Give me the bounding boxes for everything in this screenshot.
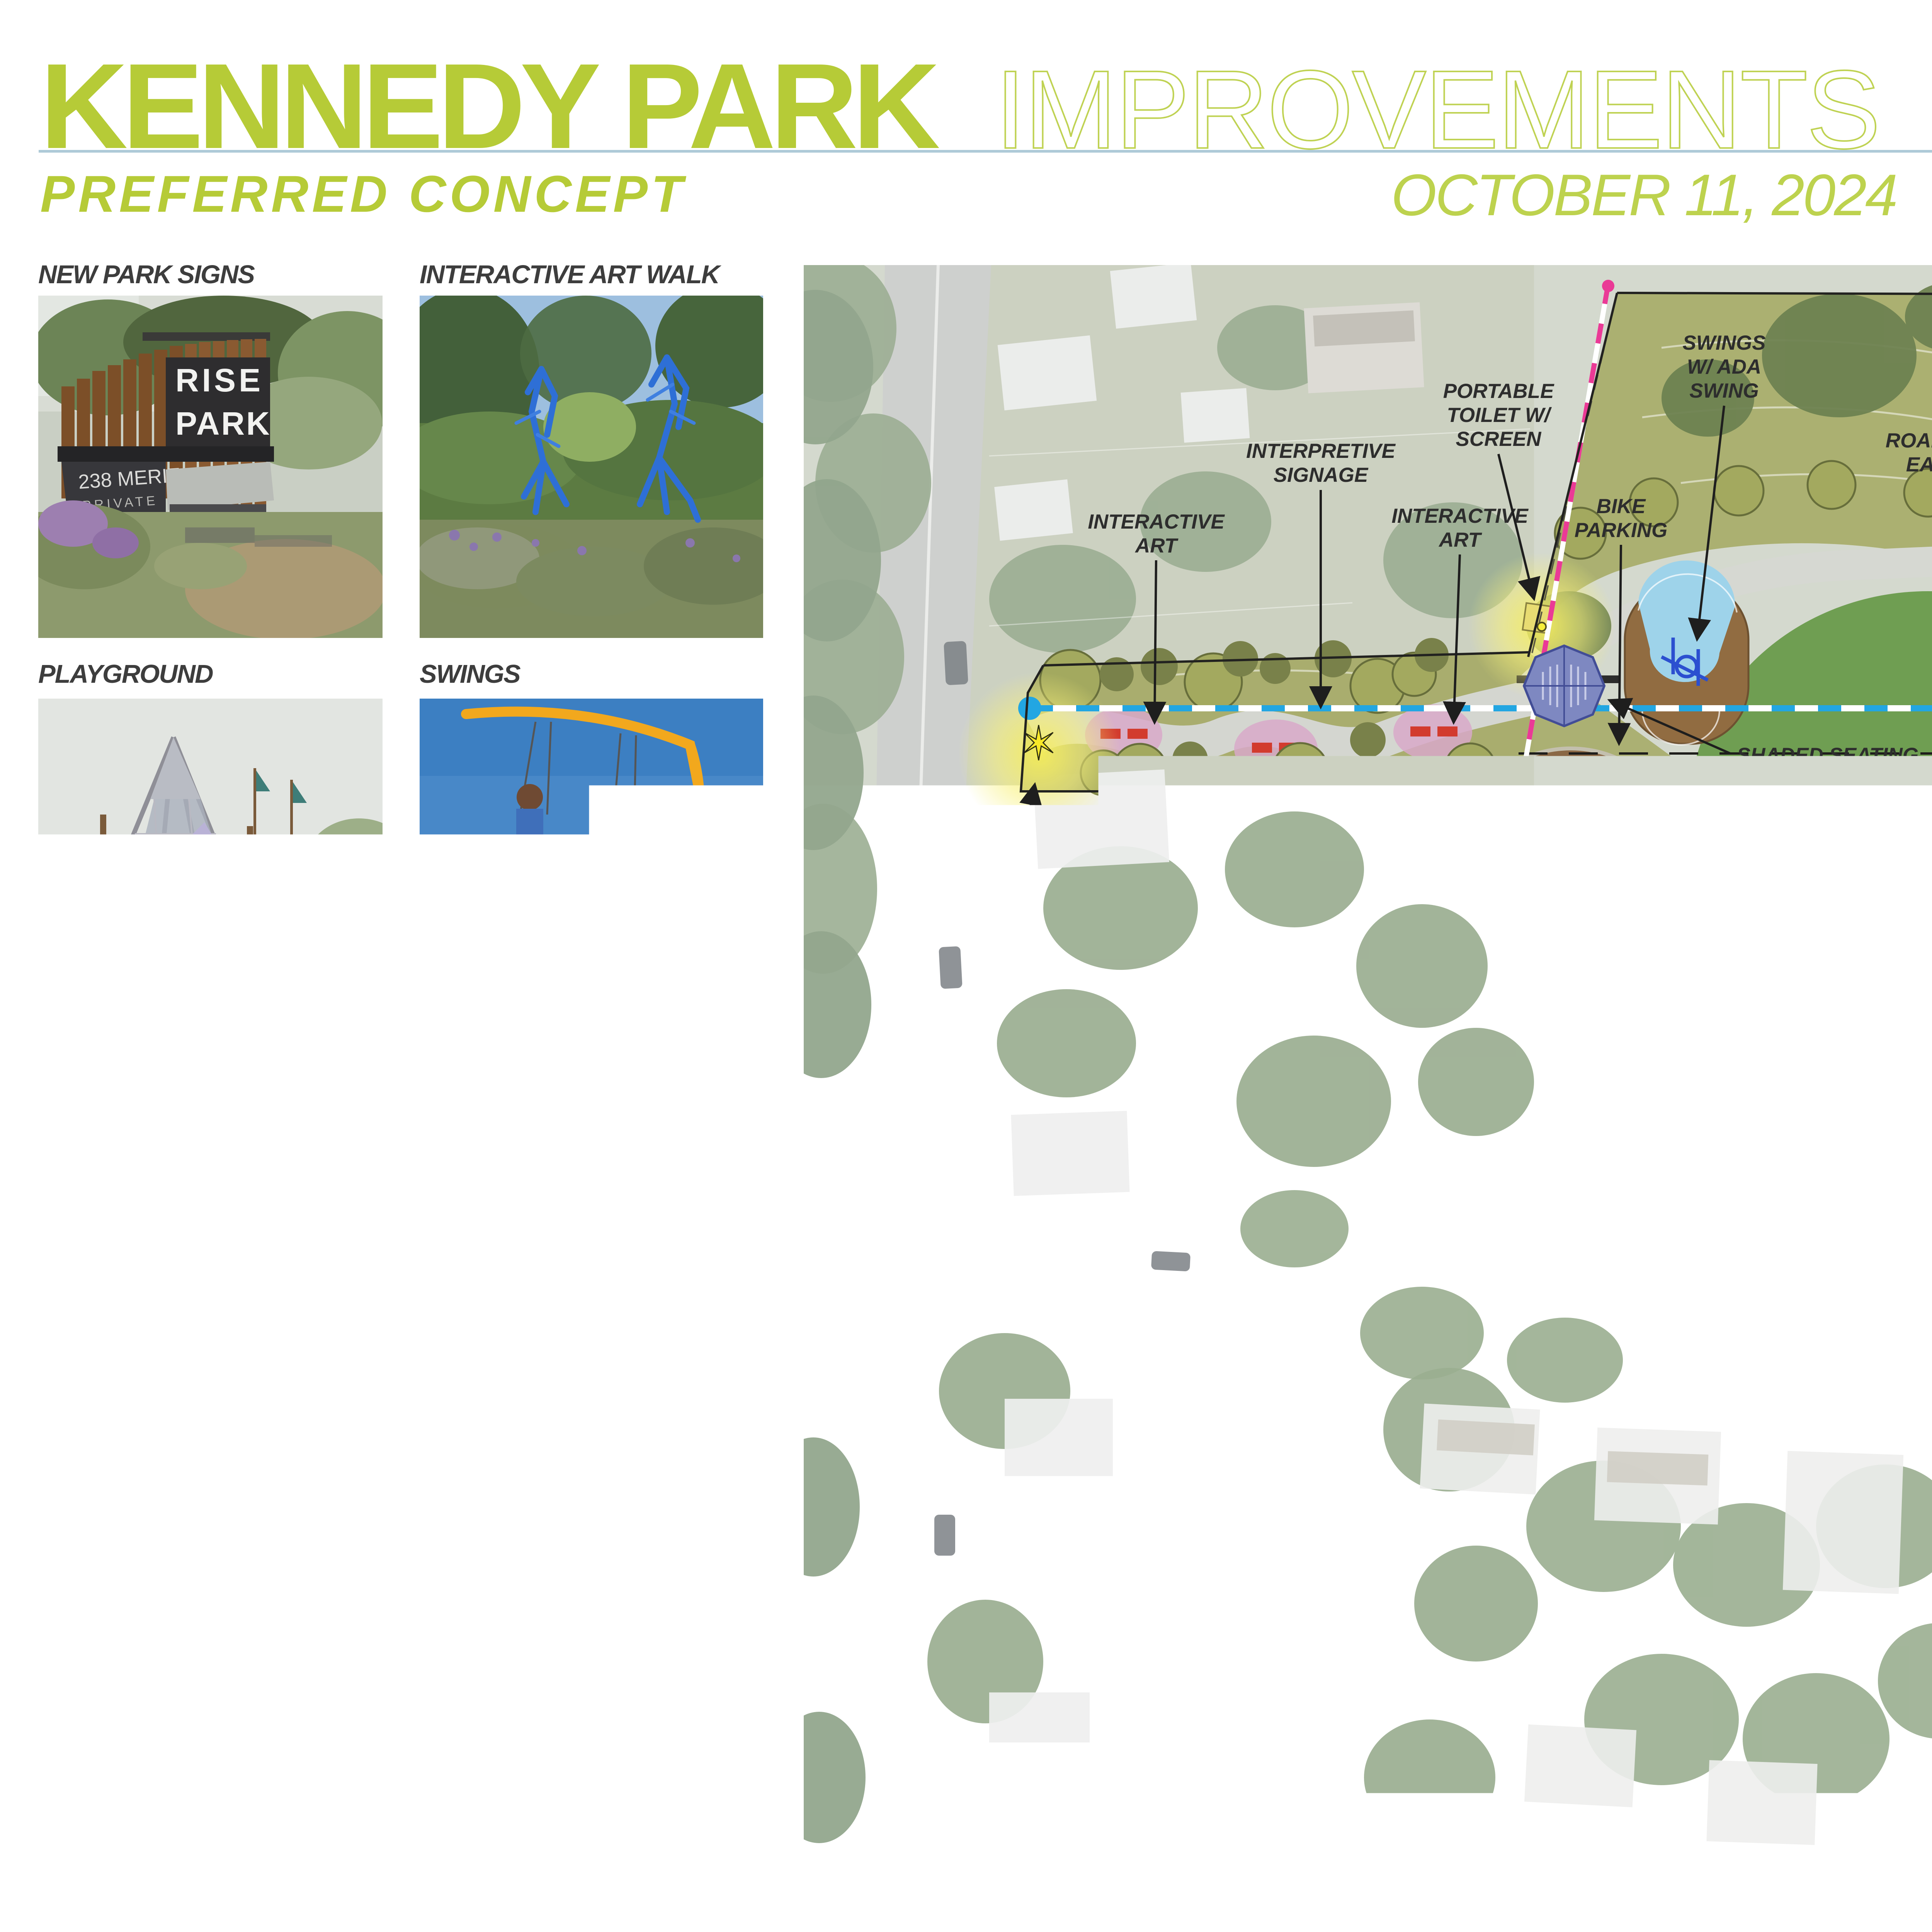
svg-text:PORTABLE: PORTABLE (1443, 380, 1554, 403)
svg-text:PARK: PARK (1618, 1341, 1670, 1361)
svg-text:W/ ADA: W/ ADA (1687, 355, 1761, 378)
svg-text:TOILET W/: TOILET W/ (1447, 404, 1552, 427)
svg-text:STORMSEWER: STORMSEWER (1859, 1750, 1932, 1771)
svg-text:SLEDDING: SLEDDING (1863, 1173, 1932, 1196)
svg-text:PLAYGROUND: PLAYGROUND (1319, 836, 1463, 859)
svg-text:SWING: SWING (1689, 379, 1759, 402)
svg-text:EASEMENT: EASEMENT (1906, 453, 1932, 476)
svg-text:HILL: HILL (1893, 1197, 1932, 1219)
svg-text:HILLSIDE SLIDES /PLAY: HILLSIDE SLIDES /PLAY (1233, 1051, 1472, 1074)
svg-text:SIGNAGE: SIGNAGE (1600, 1386, 1687, 1406)
svg-text:BENCH: BENCH (1340, 783, 1401, 802)
svg-text:INTERPRETIVE: INTERPRETIVE (1246, 440, 1396, 463)
svg-text:SIGNAGE: SIGNAGE (1274, 464, 1369, 486)
svg-text:ART: ART (1438, 529, 1483, 551)
svg-text:HILLSIDE LIGHTING: HILLSIDE LIGHTING (1074, 1277, 1252, 1298)
svg-text:INTERACTIVE: INTERACTIVE (1391, 505, 1529, 527)
svg-text:PARKING: PARKING (1575, 519, 1667, 542)
svg-text:PARK: PARK (175, 405, 271, 442)
svg-text:SCREEN: SCREEN (1456, 428, 1542, 451)
svg-text:PARK SIGN: PARK SIGN (976, 850, 1089, 873)
svg-text:SWINGS: SWINGS (1683, 332, 1766, 354)
svg-text:INTERACTIVE: INTERACTIVE (1088, 510, 1225, 533)
svg-text:RESILIENT PLAY SURFACE: RESILIENT PLAY SURFACE (1256, 1099, 1480, 1117)
svg-text:ROAD / UTILITY: ROAD / UTILITY (1886, 429, 1932, 452)
svg-text:ART: ART (1134, 534, 1179, 557)
svg-text:RISE: RISE (175, 362, 264, 398)
svg-text:BIKE: BIKE (1597, 495, 1646, 518)
svg-text:HISTORY: HISTORY (1602, 1363, 1686, 1384)
svg-text:SHADED SEATING: SHADED SEATING (1737, 744, 1918, 767)
svg-text:NATURE PLAY: NATURE PLAY (1346, 928, 1490, 951)
svg-text:PUBLIC ART: PUBLIC ART (1653, 1657, 1789, 1682)
